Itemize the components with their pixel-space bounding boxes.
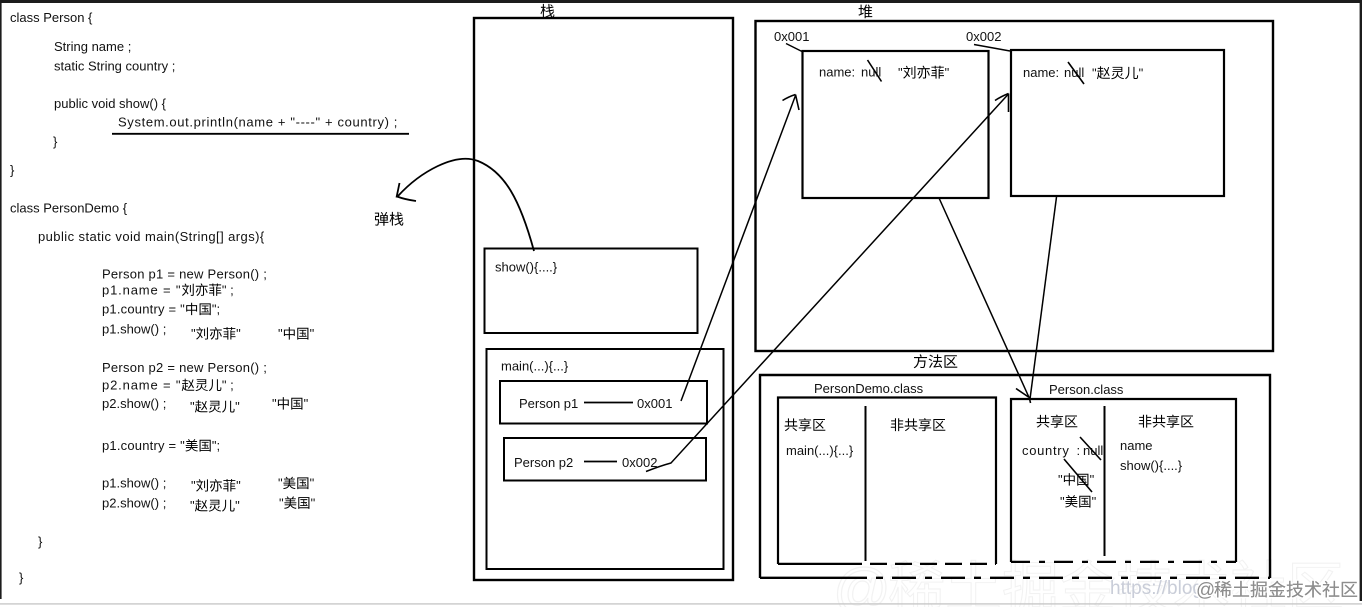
svg-text:": " [278,326,283,341]
svg-text:p1.country = ": p1.country = " [102,438,185,453]
svg-text:public static void main(String: public static void main(String[] args){ [38,229,265,244]
svg-text:": " [1139,66,1144,81]
svg-text:name:: name: [1023,65,1059,80]
svg-text:": " [1060,494,1065,509]
svg-text:" ;: " ; [222,378,234,393]
svg-text:Person.class: Person.class [1049,382,1124,397]
svg-text:": " [235,399,240,414]
svg-text:" ;: " ; [222,282,234,297]
svg-text:": " [311,495,316,510]
svg-text:": " [190,498,195,513]
svg-text:PersonDemo.class: PersonDemo.class [814,381,924,396]
svg-text:0x002: 0x002 [622,455,657,470]
svg-text:": " [310,326,315,341]
svg-text:p1.show() ;: p1.show() ; [102,322,166,337]
svg-text:String name ;: String name ; [54,39,131,54]
svg-text:";: "; [212,438,220,453]
svg-text:class Person {: class Person { [10,10,93,25]
svg-text:": " [1058,472,1063,487]
svg-text:": " [304,396,309,411]
svg-text:name: name [1120,438,1153,453]
svg-text:null: null [1064,65,1084,80]
svg-text:public void show() {: public void show() { [54,96,167,111]
svg-text:": " [236,326,241,341]
svg-text:Person p1: Person p1 [519,396,578,411]
svg-text:@: @ [1196,580,1215,601]
svg-text:": " [279,495,284,510]
svg-text:country: country [1022,443,1070,458]
svg-text::: : [1077,443,1081,458]
svg-text:": " [1092,66,1097,81]
svg-text:": " [235,498,240,513]
svg-text:";: "; [212,302,220,317]
svg-text:}: } [10,163,15,178]
svg-text:Person p1 = new Person() ;: Person p1 = new Person() ; [102,266,267,281]
svg-text:": " [1092,494,1097,509]
svg-text:0x001: 0x001 [637,396,672,411]
svg-text:main(...){...}: main(...){...} [786,443,854,458]
svg-text:name:: name: [819,65,855,80]
svg-text:": " [1090,472,1095,487]
svg-text:}: } [38,534,43,549]
svg-text:p1.name = ": p1.name = " [102,282,181,297]
svg-text:System.out.println(name + "---: System.out.println(name + "----" + count… [118,115,398,130]
svg-text:0x002: 0x002 [966,29,1001,44]
svg-text:0x001: 0x001 [774,29,809,44]
svg-text:main(...){...}: main(...){...} [501,359,569,374]
svg-text:Person p2: Person p2 [514,455,573,470]
svg-text:}: } [53,134,58,149]
svg-text:class PersonDemo {: class PersonDemo { [10,201,128,216]
svg-text:": " [191,478,196,493]
svg-text:": " [191,326,196,341]
svg-text:": " [190,399,195,414]
svg-text:static String country ;: static String country ; [54,59,175,74]
svg-text:p2.name = ": p2.name = " [102,378,181,393]
svg-text:": " [236,478,241,493]
svg-text:}: } [19,570,24,585]
svg-text:": " [898,65,903,80]
svg-text:": " [278,476,283,491]
svg-text:Person p2 = new Person() ;: Person p2 = new Person() ; [102,360,267,375]
svg-text:": " [945,65,950,80]
svg-text:p1.show() ;: p1.show() ; [102,476,166,491]
svg-text:p1.country = ": p1.country = " [102,302,185,317]
svg-text:p2.show() ;: p2.show() ; [102,396,166,411]
svg-text:": " [310,476,315,491]
svg-text:show(){....}: show(){....} [495,260,558,275]
svg-text:show(){....}: show(){....} [1120,458,1183,473]
svg-text:": " [272,396,277,411]
svg-text:p2.show() ;: p2.show() ; [102,495,166,510]
